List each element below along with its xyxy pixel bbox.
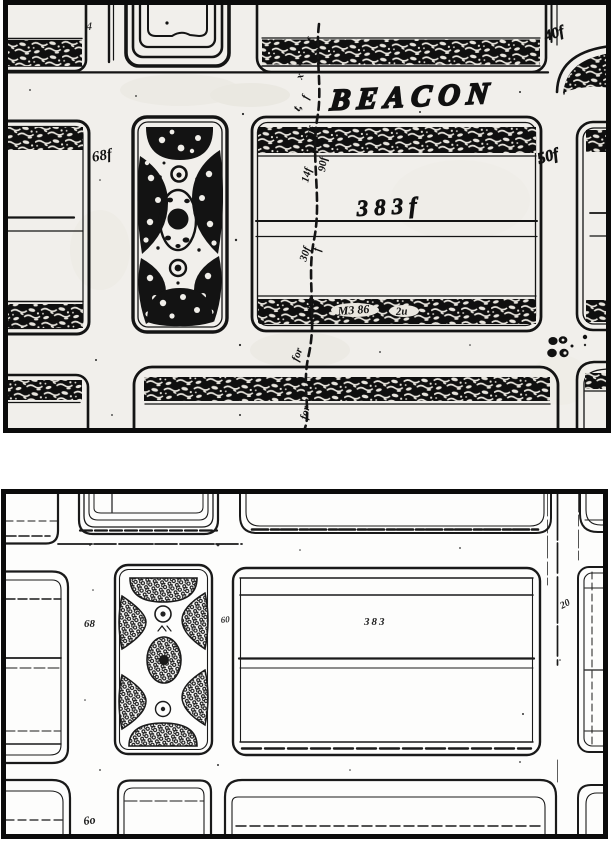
svg-text:2u: 2u [395,305,408,318]
svg-text:68: 68 [84,618,96,630]
svg-text:6o: 6o [82,812,96,828]
svg-text:4: 4 [86,19,92,33]
svg-text:383f: 383f [355,193,423,221]
svg-text:60: 60 [220,614,230,625]
svg-text:383: 383 [363,616,387,628]
svg-text:M3 86: M3 86 [336,302,370,318]
